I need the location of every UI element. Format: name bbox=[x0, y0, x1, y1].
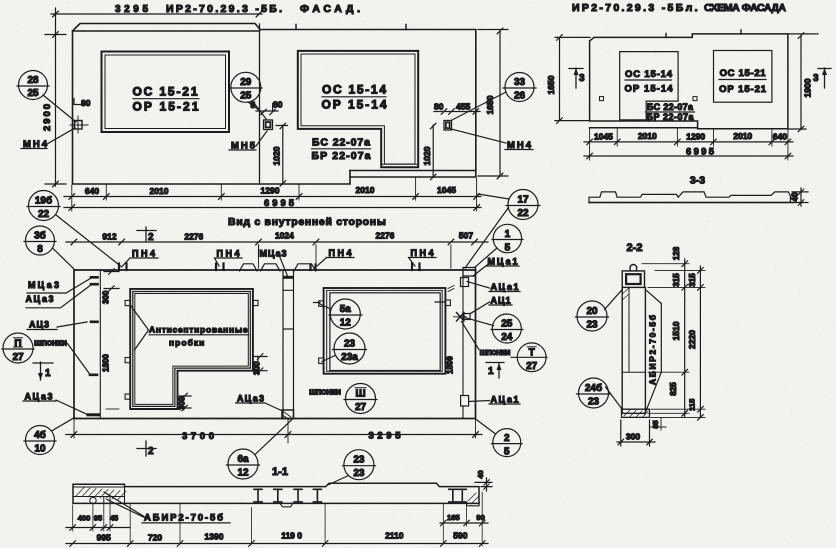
svg-text:БР 22-07а: БР 22-07а bbox=[312, 150, 371, 162]
svg-text:17: 17 bbox=[517, 195, 529, 206]
svg-text:23: 23 bbox=[588, 397, 600, 408]
svg-text:ФАСАД.: ФАСАД. bbox=[300, 3, 364, 15]
svg-text:ПН4: ПН4 bbox=[217, 249, 240, 259]
svg-text:2110: 2110 bbox=[385, 531, 404, 541]
svg-text:СХЕМА ФАСАДА: СХЕМА ФАСАДА bbox=[704, 2, 786, 14]
svg-text:23: 23 bbox=[353, 468, 365, 479]
svg-text:3: 3 bbox=[579, 73, 585, 84]
svg-text:27: 27 bbox=[526, 361, 538, 372]
svg-text:2010: 2010 bbox=[733, 131, 752, 141]
svg-text:33: 33 bbox=[514, 77, 526, 88]
svg-text:23: 23 bbox=[344, 339, 356, 350]
svg-text:95: 95 bbox=[94, 514, 102, 523]
svg-text:БС 22-07а: БС 22-07а bbox=[647, 102, 694, 112]
svg-text:ОС 15-21: ОС 15-21 bbox=[720, 68, 767, 79]
svg-text:315: 315 bbox=[672, 273, 681, 287]
svg-text:П: П bbox=[14, 339, 21, 350]
svg-text:Вид с внутренней стороны: Вид с внутренней стороны bbox=[228, 216, 388, 228]
svg-text:119 0: 119 0 bbox=[281, 531, 302, 541]
svg-text:МЦа3: МЦа3 bbox=[260, 249, 287, 259]
svg-text:Т: Т bbox=[529, 347, 535, 358]
svg-text:23а: 23а bbox=[341, 352, 358, 363]
svg-text:1390: 1390 bbox=[205, 532, 224, 542]
svg-text:ИР2-70.29.3 -5Б.: ИР2-70.29.3 -5Б. bbox=[166, 3, 283, 15]
svg-text:ОС 15-14: ОС 15-14 bbox=[625, 69, 673, 80]
svg-text:825: 825 bbox=[669, 382, 678, 396]
svg-text:3-3: 3-3 bbox=[690, 175, 705, 187]
svg-text:АЦ1: АЦ1 bbox=[491, 296, 511, 306]
svg-text:Ш: Ш bbox=[355, 389, 365, 400]
svg-text:40: 40 bbox=[791, 192, 800, 201]
svg-text:85: 85 bbox=[651, 420, 660, 428]
svg-text:2010: 2010 bbox=[638, 131, 657, 141]
svg-text:1650: 1650 bbox=[546, 75, 556, 94]
svg-text:28: 28 bbox=[27, 75, 39, 86]
svg-text:455: 455 bbox=[456, 102, 470, 112]
svg-text:22: 22 bbox=[38, 209, 50, 220]
svg-text:400: 400 bbox=[78, 514, 91, 523]
svg-text:20: 20 bbox=[586, 306, 598, 317]
svg-text:300: 300 bbox=[178, 396, 187, 410]
svg-text:1510: 1510 bbox=[671, 321, 681, 340]
svg-text:1900: 1900 bbox=[803, 78, 813, 97]
svg-text:995: 995 bbox=[97, 533, 111, 543]
svg-text:1650: 1650 bbox=[485, 95, 495, 114]
svg-text:24: 24 bbox=[501, 332, 513, 343]
svg-text:2276: 2276 bbox=[184, 232, 203, 242]
svg-text:25: 25 bbox=[27, 88, 39, 99]
svg-text:шпонки: шпонки bbox=[309, 387, 341, 397]
svg-text:2010: 2010 bbox=[356, 185, 375, 195]
svg-text:пробки: пробки bbox=[169, 338, 205, 348]
svg-text:1024: 1024 bbox=[275, 231, 294, 241]
svg-text:5: 5 bbox=[505, 243, 511, 254]
svg-text:2: 2 bbox=[148, 446, 154, 457]
svg-text:8: 8 bbox=[37, 244, 43, 255]
svg-text:128: 128 bbox=[672, 246, 681, 260]
svg-text:шпонки: шпонки bbox=[34, 338, 67, 348]
svg-text:5: 5 bbox=[504, 447, 510, 458]
svg-text:27: 27 bbox=[355, 402, 367, 413]
svg-text:2-2: 2-2 bbox=[627, 242, 643, 254]
svg-text:1: 1 bbox=[488, 366, 494, 377]
svg-text:1020: 1020 bbox=[272, 146, 282, 165]
svg-text:МЦа1: МЦа1 bbox=[488, 257, 518, 267]
svg-text:БР 22-07а: БР 22-07а bbox=[647, 112, 695, 122]
svg-text:23: 23 bbox=[353, 455, 365, 466]
svg-text:19б: 19б bbox=[35, 195, 52, 207]
svg-text:26: 26 bbox=[514, 91, 526, 102]
svg-text:АЦа3: АЦа3 bbox=[26, 294, 54, 304]
svg-text:МЦа3: МЦа3 bbox=[28, 280, 59, 290]
svg-text:23: 23 bbox=[586, 320, 598, 331]
svg-text:40: 40 bbox=[476, 470, 485, 478]
svg-text:4б: 4б bbox=[34, 429, 46, 441]
svg-text:90: 90 bbox=[476, 513, 484, 522]
svg-text:45: 45 bbox=[110, 514, 118, 523]
svg-text:1800: 1800 bbox=[102, 354, 111, 372]
svg-text:1: 1 bbox=[45, 368, 51, 379]
svg-text:БС 22-07а: БС 22-07а bbox=[312, 137, 370, 149]
svg-text:1-1: 1-1 bbox=[272, 466, 288, 478]
svg-text:912: 912 bbox=[102, 232, 116, 242]
svg-text:80: 80 bbox=[81, 98, 91, 108]
svg-text:24б: 24б bbox=[585, 382, 602, 394]
svg-text:6а: 6а bbox=[237, 454, 249, 465]
svg-text:80: 80 bbox=[273, 100, 283, 110]
svg-text:22: 22 bbox=[517, 208, 529, 219]
svg-text:1045: 1045 bbox=[437, 185, 456, 195]
svg-text:2900: 2900 bbox=[42, 104, 53, 131]
svg-text:5а: 5а bbox=[340, 304, 352, 315]
svg-text:1290: 1290 bbox=[686, 132, 705, 142]
svg-text:ПН4: ПН4 bbox=[329, 248, 352, 258]
svg-text:25: 25 bbox=[240, 91, 252, 102]
svg-text:1290: 1290 bbox=[261, 186, 280, 196]
svg-text:ИР2-70.29.3 -5Бл.: ИР2-70.29.3 -5Бл. bbox=[572, 2, 698, 14]
svg-text:2: 2 bbox=[504, 433, 510, 444]
svg-text:3: 3 bbox=[813, 73, 819, 84]
svg-text:29: 29 bbox=[240, 77, 252, 88]
svg-text:300: 300 bbox=[626, 432, 640, 442]
svg-text:12: 12 bbox=[340, 318, 352, 329]
svg-text:80: 80 bbox=[434, 102, 444, 112]
svg-text:315: 315 bbox=[688, 273, 697, 287]
svg-text:АЦ3: АЦ3 bbox=[29, 320, 49, 330]
svg-text:25: 25 bbox=[501, 319, 513, 330]
svg-text:Антисептированные: Антисептированные bbox=[149, 325, 248, 335]
svg-text:2276: 2276 bbox=[375, 231, 394, 241]
svg-text:АЦа3: АЦа3 bbox=[25, 392, 53, 402]
svg-text:27: 27 bbox=[12, 352, 24, 363]
svg-text:АБИР2-70-5б: АБИР2-70-5б bbox=[648, 315, 658, 385]
svg-text:2220: 2220 bbox=[687, 330, 697, 349]
svg-text:2: 2 bbox=[148, 232, 154, 243]
svg-text:507: 507 bbox=[459, 231, 473, 241]
svg-text:300: 300 bbox=[253, 361, 262, 375]
svg-text:165: 165 bbox=[447, 513, 460, 522]
svg-text:1800: 1800 bbox=[446, 356, 455, 374]
svg-text:АЦа1: АЦа1 bbox=[491, 282, 519, 292]
svg-text:640: 640 bbox=[85, 186, 99, 196]
svg-text:10: 10 bbox=[34, 444, 46, 455]
svg-text:АЦа3: АЦа3 bbox=[237, 394, 264, 404]
svg-text:590: 590 bbox=[453, 531, 467, 541]
svg-text:1020: 1020 bbox=[422, 146, 432, 165]
svg-text:115: 115 bbox=[688, 399, 697, 411]
svg-text:1: 1 bbox=[505, 229, 511, 240]
svg-text:2010: 2010 bbox=[150, 186, 169, 196]
svg-text:3б: 3б bbox=[34, 230, 46, 242]
svg-text:АЦа1: АЦа1 bbox=[491, 395, 519, 405]
svg-text:12: 12 bbox=[237, 468, 249, 479]
svg-text:640: 640 bbox=[773, 132, 787, 142]
svg-text:1045: 1045 bbox=[594, 132, 613, 142]
svg-text:ПН4: ПН4 bbox=[411, 248, 434, 258]
svg-text:300: 300 bbox=[102, 290, 111, 304]
svg-text:6995: 6995 bbox=[686, 147, 715, 158]
svg-text:ОР 15-14: ОР 15-14 bbox=[625, 84, 674, 95]
svg-text:шпонки: шпонки bbox=[480, 347, 511, 357]
svg-text:ОР 15-21: ОР 15-21 bbox=[719, 84, 767, 95]
svg-text:ПН4: ПН4 bbox=[132, 249, 155, 259]
svg-text:АБИР2-70-5б: АБИР2-70-5б bbox=[144, 513, 224, 524]
svg-text:720: 720 bbox=[148, 533, 162, 543]
